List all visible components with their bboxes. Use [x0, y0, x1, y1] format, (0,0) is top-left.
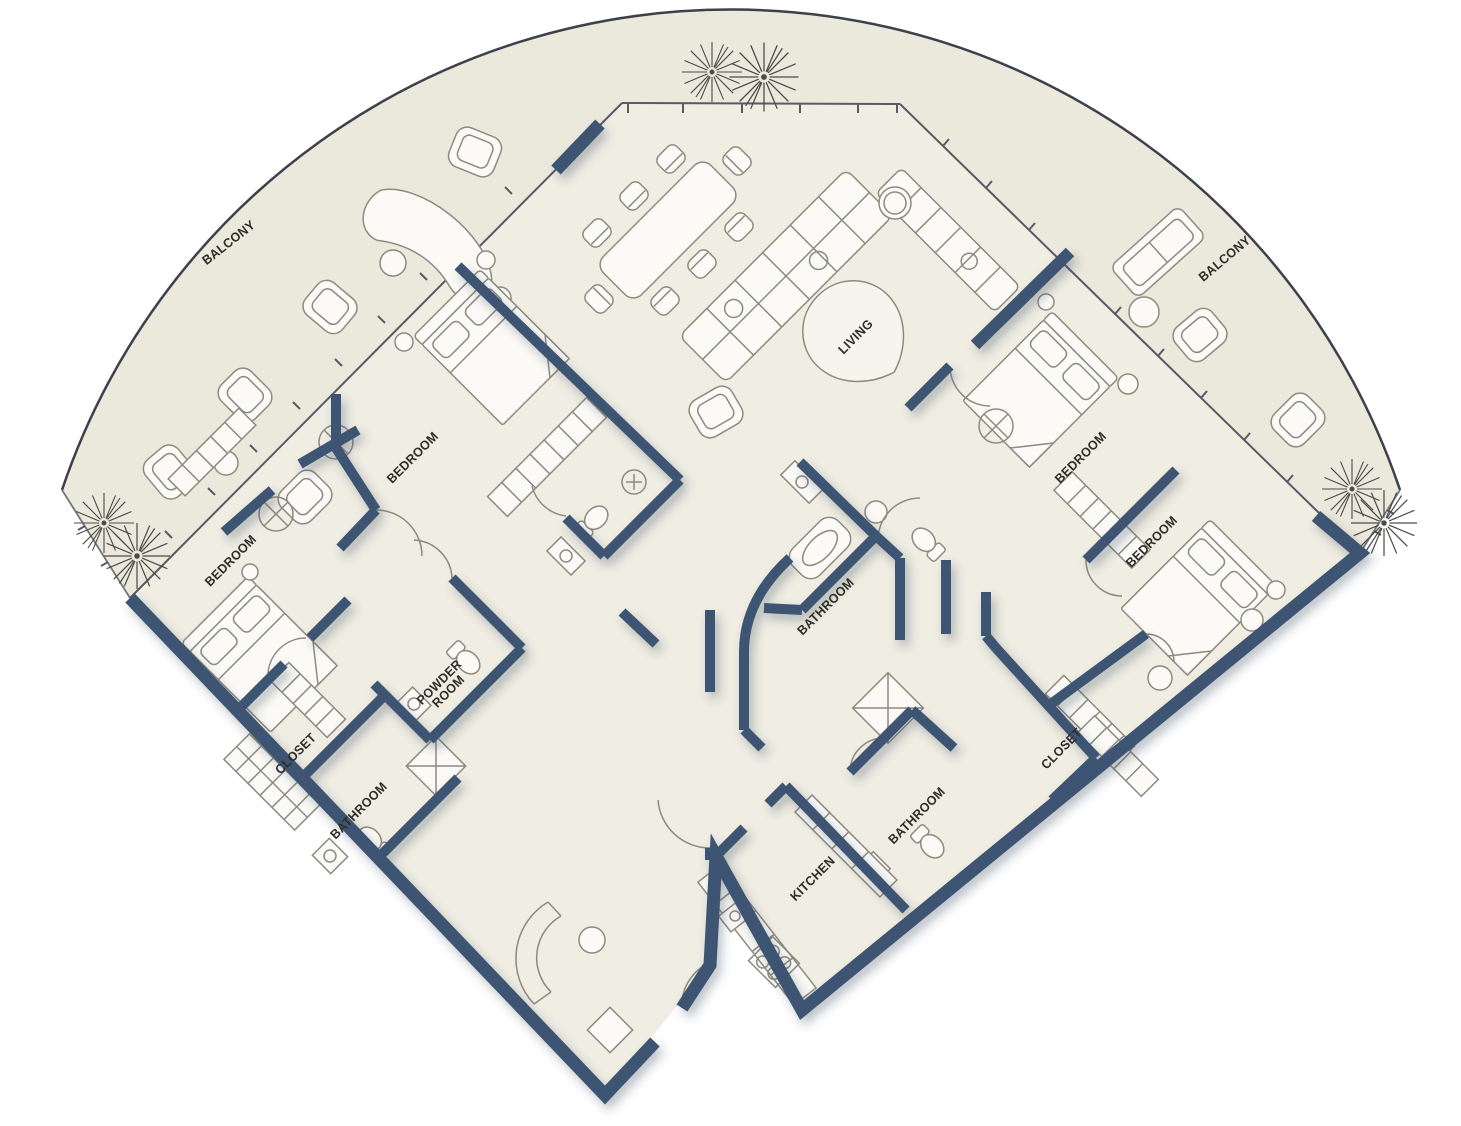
floorplan-drawing	[0, 0, 1461, 1126]
tree-icon	[682, 42, 742, 102]
nightstand	[1038, 294, 1054, 310]
floorplan-canvas: BALCONYBALCONYBEDROOMBEDROOMLIVINGBEDROO…	[0, 0, 1461, 1126]
tree-icon	[104, 523, 170, 589]
tree-icon	[1351, 490, 1417, 556]
foyer-round-table	[579, 927, 605, 953]
nightstand	[1267, 581, 1285, 599]
balcony-side-table	[1129, 297, 1159, 327]
sink	[312, 838, 347, 873]
nightstand	[1148, 666, 1172, 690]
nightstand	[1118, 374, 1138, 394]
tree-icon	[1322, 459, 1382, 519]
nightstand	[395, 333, 413, 351]
balcony-side-table	[380, 250, 406, 276]
nightstand	[477, 251, 495, 269]
tree-icon	[730, 43, 799, 112]
nightstand	[242, 564, 258, 580]
